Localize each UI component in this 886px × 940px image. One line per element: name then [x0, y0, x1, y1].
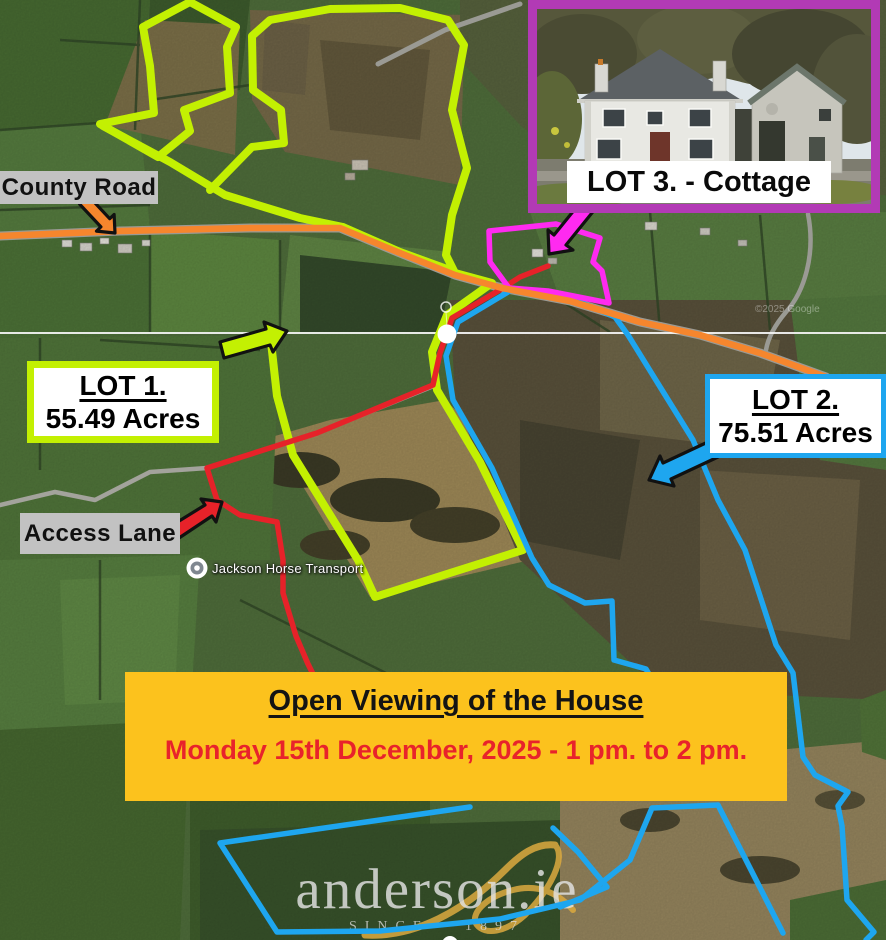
- junction-dot: [438, 325, 457, 344]
- lot3-caption-text: LOT 3. - Cottage: [587, 166, 811, 199]
- property-map: anderson.ie SINCE · 1897 ©2025 Google: [0, 0, 886, 940]
- access-lane-label: Access Lane: [20, 513, 180, 554]
- lot3-caption: LOT 3. - Cottage: [567, 161, 831, 203]
- county-road-label-text: County Road: [2, 174, 157, 202]
- photo-farmhouse: [577, 49, 743, 173]
- lot2-callout: LOT 2. 75.51 Acres: [705, 374, 886, 458]
- banner-title: Open Viewing of the House: [125, 685, 787, 718]
- lot2-area: 75.51 Acres: [710, 416, 881, 449]
- county-road-label: County Road: [0, 171, 158, 204]
- lot1-area: 55.49 Acres: [34, 402, 212, 435]
- lot3-photo-inset: LOT 3. - Cottage: [528, 0, 880, 213]
- banner-schedule: Monday 15th December, 2025 - 1 pm. to 2 …: [125, 735, 787, 766]
- location-pin-icon: [187, 558, 208, 579]
- lot1-title: LOT 1.: [34, 369, 212, 402]
- access-lane-label-text: Access Lane: [24, 520, 176, 548]
- open-viewing-banner: Open Viewing of the House Monday 15th De…: [125, 672, 787, 801]
- map-attribution: ©2025 Google: [755, 304, 820, 315]
- lot2-title: LOT 2.: [710, 383, 881, 416]
- poi-label: Jackson Horse Transport: [212, 561, 363, 576]
- lot1-callout: LOT 1. 55.49 Acres: [27, 361, 219, 443]
